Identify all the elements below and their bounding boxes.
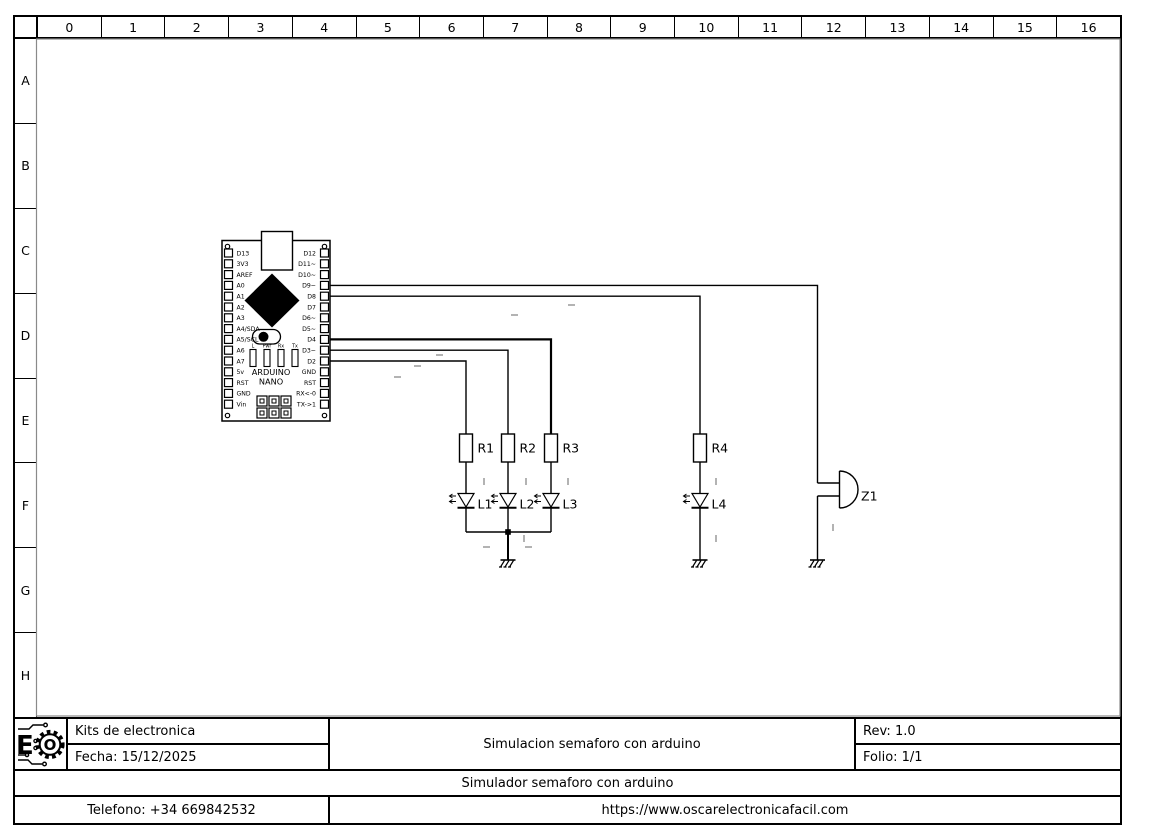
ground-symbols [499, 560, 825, 567]
pin-label: GND [302, 369, 316, 376]
usb-connector [262, 232, 293, 271]
pin-label: TX->1 [296, 402, 316, 409]
ground-symbol [809, 560, 826, 567]
ground-symbol [691, 560, 708, 567]
pin-label: A5/SCL [237, 337, 260, 344]
revision-field: Rev: 1.0 [856, 719, 1120, 745]
drawing-title: Simulacion semaforo con arduino [330, 719, 856, 771]
pin-label: D4 [307, 337, 316, 344]
pin-label: D11~ [298, 261, 316, 268]
pin-label: D3~ [302, 348, 316, 355]
led-ref-label: L1 [478, 497, 493, 512]
led-ref-label: L2 [520, 497, 535, 512]
faint-marks [394, 305, 833, 547]
website-field: https://www.oscarelectronicafacil.com [330, 797, 1120, 823]
drawing-subtitle: Simulador semaforo con arduino [15, 771, 1120, 797]
resistor-ref-label: R3 [563, 441, 580, 456]
phone-field: Telefono: +34 669842532 [15, 797, 330, 823]
resistor-r3: R3 [545, 434, 580, 462]
junction-dot [505, 529, 511, 535]
indicator-label: Pwr [263, 344, 272, 350]
pin-label: A3 [237, 315, 245, 322]
pin-label: D7 [307, 304, 316, 311]
led-l3: L3 [535, 494, 578, 512]
buzzer-ref-label: Z1 [861, 489, 878, 504]
logo-graphic: E O [16, 720, 66, 768]
resistor-ref-label: R1 [478, 441, 495, 456]
leds: L1 L2 L3 L4 [450, 494, 727, 512]
wire-d4-r3 [328, 339, 551, 434]
wire-d2-r1 [328, 361, 466, 532]
schematic-canvas: R1 R2 R3 R4 L1 [0, 0, 1157, 830]
buzzer-leads [818, 483, 840, 496]
pin-label: GND [237, 391, 251, 398]
pin-label: D8 [307, 294, 316, 301]
pin-label: D13 [237, 250, 250, 257]
led-l2: L2 [492, 494, 535, 512]
resistors: R1 R2 R3 R4 [460, 434, 729, 462]
folio-field: Folio: 1/1 [856, 745, 1120, 771]
wire-d8-r4 [328, 296, 700, 560]
pin-label: D2 [307, 358, 316, 365]
pin-label: 3V3 [237, 261, 249, 268]
led-ref-label: L3 [563, 497, 578, 512]
board-title-line1: ARDUINO [252, 367, 291, 377]
pin-label: D5~ [302, 326, 316, 333]
pin-label: RST [304, 380, 316, 387]
resistor-r2: R2 [502, 434, 537, 462]
pin-label: A2 [237, 304, 245, 311]
indicator-label: L [252, 344, 255, 350]
logo-letter-e: E [16, 731, 34, 761]
pin-label: D10~ [298, 272, 316, 279]
resistor-ref-label: R2 [520, 441, 537, 456]
pin-label: D12 [303, 250, 316, 257]
resistor-r1: R1 [460, 434, 495, 462]
resistor-ref-label: R4 [712, 441, 729, 456]
date-field: Fecha: 15/12/2025 [68, 745, 330, 771]
pin-label: Vin [237, 402, 247, 409]
pin-label: RST [237, 380, 249, 387]
pin-label: A0 [237, 283, 245, 290]
title-block: E O Kits de electronica Fecha: 15/12/202… [13, 717, 1122, 825]
led-ref-label: L4 [712, 497, 727, 512]
arduino-nano: L Pwr Rx Tx ARDUINO NANO D13 3V3 AREF [222, 232, 330, 422]
pin-label: A6 [237, 348, 245, 355]
pin-label: A1 [237, 294, 245, 301]
ground-symbol [499, 560, 516, 567]
wires [328, 285, 818, 560]
pin-label: RX<-0 [296, 391, 316, 398]
buzzer-z1: Z1 [818, 471, 878, 508]
pin-label: A7 [237, 358, 245, 365]
pin-label: D6~ [302, 315, 316, 322]
led-l4: L4 [684, 494, 727, 512]
resistor-r4: R4 [694, 434, 729, 462]
board-title-line2: NANO [259, 377, 283, 387]
wire-d9-z1 [328, 285, 818, 560]
indicator-label: Tx [291, 344, 298, 350]
buzzer-body [840, 471, 859, 508]
pin-label: D9~ [302, 283, 316, 290]
pin-label: 5v [237, 369, 245, 376]
led-l1: L1 [450, 494, 493, 512]
company-name: Kits de electronica [68, 719, 330, 745]
schematic-sheet: 0 1 2 3 4 5 6 7 8 9 10 11 12 13 14 15 16… [0, 0, 1157, 830]
drawing-area-frame [37, 39, 1121, 716]
indicator-label: Rx [278, 344, 284, 350]
company-logo: E O [15, 719, 68, 771]
logo-letter-o: O [43, 736, 56, 754]
pin-label: AREF [237, 272, 253, 279]
pin-label: A4/SDA [237, 326, 261, 333]
